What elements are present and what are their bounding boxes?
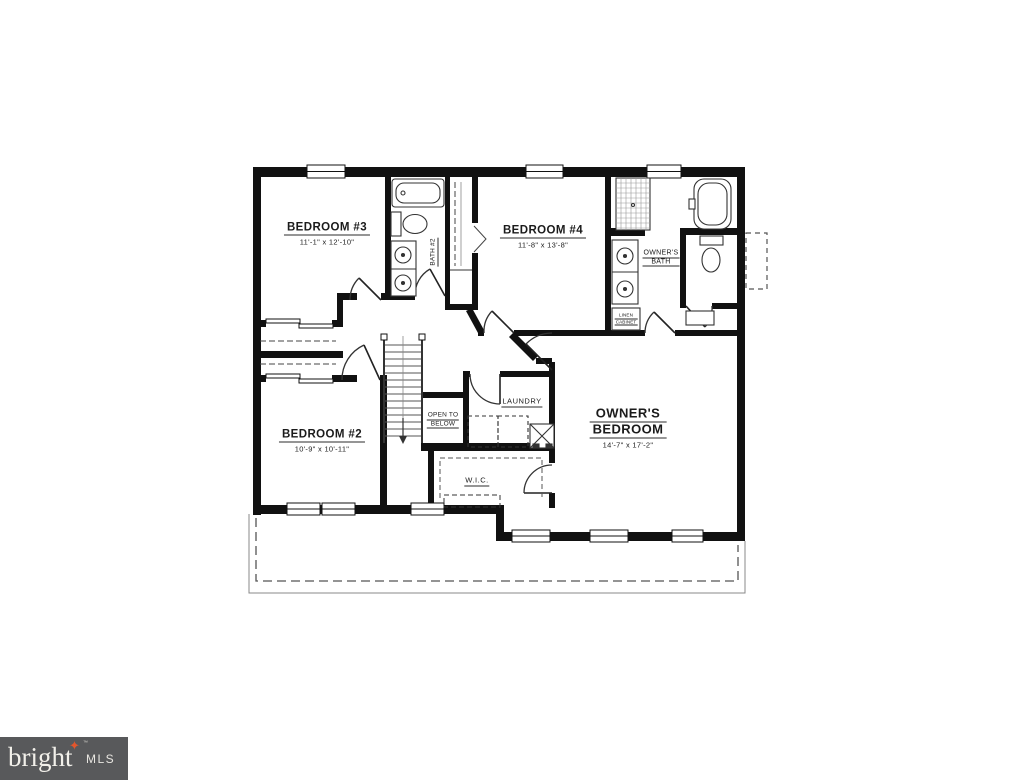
toilet: [700, 236, 723, 272]
four-point-star-icon: ✦: [69, 738, 80, 754]
door-bedroom-2: [342, 345, 380, 380]
dryer: [498, 416, 528, 447]
window: [526, 165, 563, 178]
laundry-sink: [530, 424, 554, 448]
shower: [616, 178, 650, 230]
floorplan-page: BEDROOM #3 11'-1" x 12'-10" BEDROOM #4 1…: [0, 0, 1010, 780]
window: [411, 503, 444, 515]
bright-mls-logo: bright ✦ ™ MLS: [0, 737, 128, 780]
window: [322, 503, 355, 515]
door-owners-bath: [645, 312, 675, 333]
closet-rods: [260, 182, 455, 364]
window: [590, 530, 628, 542]
roof-below-right: [746, 233, 767, 289]
vanity-double-sink: [612, 240, 638, 304]
washer: [468, 416, 498, 447]
toilet: [391, 212, 427, 236]
logo-trademark: ™: [83, 740, 88, 746]
bifold-closet-door: [474, 226, 486, 252]
bathtub: [392, 179, 444, 207]
linen-cabinet-box: [612, 308, 640, 330]
floorplan-drawing: [0, 0, 1010, 780]
logo-suffix-text: MLS: [86, 752, 115, 766]
staircase: [381, 334, 425, 444]
door-bath-2: [415, 269, 445, 296]
window: [307, 165, 345, 178]
wc-cabinet: [686, 311, 714, 325]
wic-shelving: [440, 458, 542, 498]
window: [672, 530, 703, 542]
wic-fittings: [440, 458, 542, 507]
window: [647, 165, 681, 178]
vanity-double-sink: [391, 241, 416, 296]
freestanding-tub: [689, 179, 731, 229]
door-wic: [524, 465, 552, 493]
door-laundry: [470, 374, 500, 404]
window: [512, 530, 550, 542]
window: [287, 503, 320, 515]
logo-brand-text: bright: [8, 742, 73, 772]
door-bedroom-4: [484, 311, 514, 333]
